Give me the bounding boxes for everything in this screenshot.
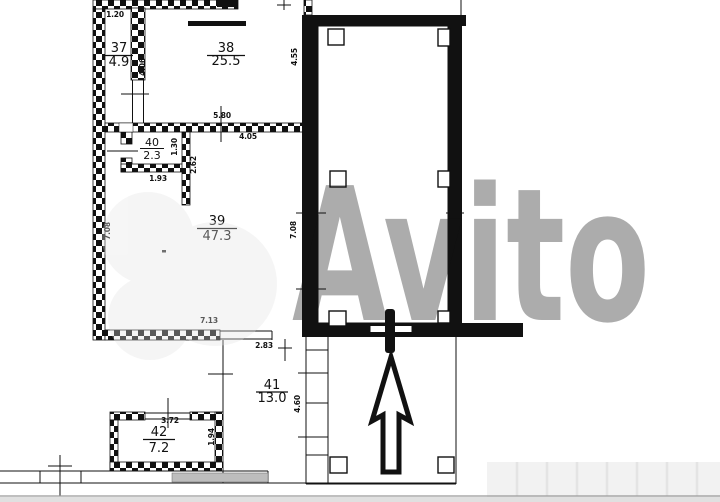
column-marker	[330, 457, 347, 473]
plot-boundary-band	[0, 497, 720, 502]
room-38-area: 25.5	[212, 54, 241, 69]
room-37-number: 37	[111, 41, 128, 56]
column-marker	[438, 457, 454, 473]
room-40-area: 2.3	[143, 149, 161, 162]
room-42-number: 42	[151, 425, 168, 440]
wall-40-bottom	[121, 164, 190, 172]
wall-42-top-left	[110, 412, 145, 420]
dim-room40-stub: 2.62	[189, 156, 198, 174]
watermark-text: Avito	[292, 148, 650, 364]
dim-room42-height: 1.94	[207, 428, 216, 446]
room-42-area: 7.2	[149, 441, 170, 456]
wall-top-right-strip	[304, 0, 312, 15]
column-marker	[438, 29, 450, 46]
bold-top-cut	[217, 0, 238, 7]
gray-step-band	[172, 473, 268, 482]
wall-42-bottom	[110, 462, 223, 471]
dim-room38-width: 5.80	[213, 111, 231, 120]
dim-room39-top: 4.05	[239, 132, 257, 141]
unit-wall-top	[302, 15, 466, 26]
wall-left-outer	[93, 9, 105, 340]
dim-room37-height: 4.06	[138, 58, 147, 76]
floor-plan: 37 4.9 38 25.5 39 47.3 40 2.3 41 13.0 42…	[0, 0, 720, 502]
room-37-area: 4.9	[109, 55, 130, 70]
room-41-area: 13.0	[258, 391, 287, 406]
dim-room41-height: 4.60	[293, 395, 302, 413]
doorway-gap	[119, 123, 133, 132]
watermark-logo-circle	[108, 276, 192, 360]
wall-top-cut-band	[93, 0, 238, 9]
dim-room42-width: 3.72	[161, 416, 179, 425]
dim-room40-height: 1.30	[170, 138, 179, 156]
column-marker	[328, 29, 344, 45]
dim-room40-width: 1.93	[149, 174, 167, 183]
dim-hall-upper-height: 4.55	[290, 48, 299, 66]
wall-mid-horizontal	[105, 123, 307, 132]
wall-40-left-upper	[121, 132, 132, 144]
dim-door-width: 2.83	[255, 341, 273, 350]
bold-bar-room38	[188, 21, 246, 26]
dim-room37-width: 1.20	[106, 10, 124, 19]
room-40-number: 40	[145, 136, 159, 149]
